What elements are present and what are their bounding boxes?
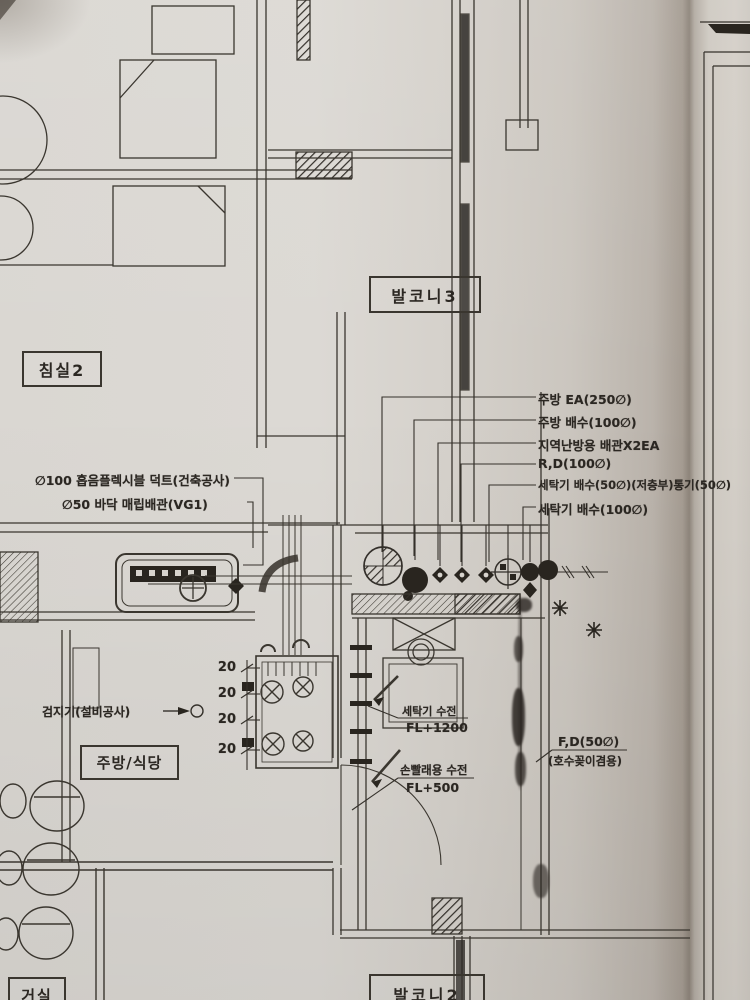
annotation-kitchen-ea: 주방 EA(250∅) xyxy=(538,389,632,408)
room-label-bedroom2-text: 침실2 xyxy=(39,357,86,381)
room-label-kitchen-dining: 주방/식당 xyxy=(80,745,179,780)
dimension-20-1: 20 xyxy=(212,660,236,675)
room-label-living: 거실 xyxy=(8,977,66,1000)
room-label-balcony3-text: 발코니3 xyxy=(391,283,458,307)
bedroom2-linework xyxy=(0,0,452,525)
dimension-20-4: 20 xyxy=(212,742,236,757)
window-shaft-linework xyxy=(452,0,549,935)
label-washer-faucet-height: FL+1200 xyxy=(406,720,468,735)
annotation-rd: R,D(100∅) xyxy=(538,456,611,471)
dimension-20-3: 20 xyxy=(212,712,236,727)
room-label-balcony2: 발코니2 xyxy=(369,974,485,1000)
label-floor-drain-note: (호수꽂이겸용) xyxy=(548,753,622,769)
annotation-kitchen-drain: 주방 배수(100∅) xyxy=(538,412,637,431)
room-label-living-text: 거실 xyxy=(21,985,53,1000)
room-label-kitchen-dining-text: 주방/식당 xyxy=(97,752,163,773)
jars-and-bottom-wall xyxy=(0,781,333,1000)
room-label-balcony3: 발코니3 xyxy=(369,276,481,313)
kitchen-linework xyxy=(0,515,352,862)
room-label-bedroom2: 침실2 xyxy=(22,351,102,387)
annotation-washer-drain-100: 세탁기 배수(100∅) xyxy=(538,499,648,518)
dimension-20-2: 20 xyxy=(212,686,236,701)
right-margin-linework xyxy=(700,22,750,1000)
annotation-detector: 검지기(설비공사) xyxy=(42,703,130,720)
label-floor-drain: F,D(50∅) xyxy=(558,734,619,749)
blueprint-photo: 발코니3 침실2 주방/식당 발코니2 거실 주방 EA(250∅) 주방 배수… xyxy=(0,0,750,1000)
label-handwash-faucet-height: FL+500 xyxy=(406,780,459,795)
annotation-district-heating: 지역난방용 배관X2EA xyxy=(538,435,659,454)
dimension-lines xyxy=(241,660,260,770)
room-label-balcony2-text: 발코니2 xyxy=(393,982,460,1000)
utility-room-linework xyxy=(268,525,690,938)
toner-streak xyxy=(518,595,522,790)
annotation-washer-drain-50: 세탁기 배수(50∅)(저층부)통기(50∅) xyxy=(538,477,731,493)
annotation-flexible-duct: ∅100 흡음플렉시블 덕트(건축공사) xyxy=(35,470,230,489)
annotation-floor-embedded-pipe: ∅50 바닥 매립배관(VG1) xyxy=(62,494,208,513)
toner-smudge xyxy=(533,864,549,898)
label-washer-faucet: 세탁기 수전 xyxy=(402,703,456,719)
label-handwash-faucet: 손빨래용 수전 xyxy=(400,762,467,778)
asterisk-marks xyxy=(552,600,602,638)
manifold-linework xyxy=(242,640,338,768)
